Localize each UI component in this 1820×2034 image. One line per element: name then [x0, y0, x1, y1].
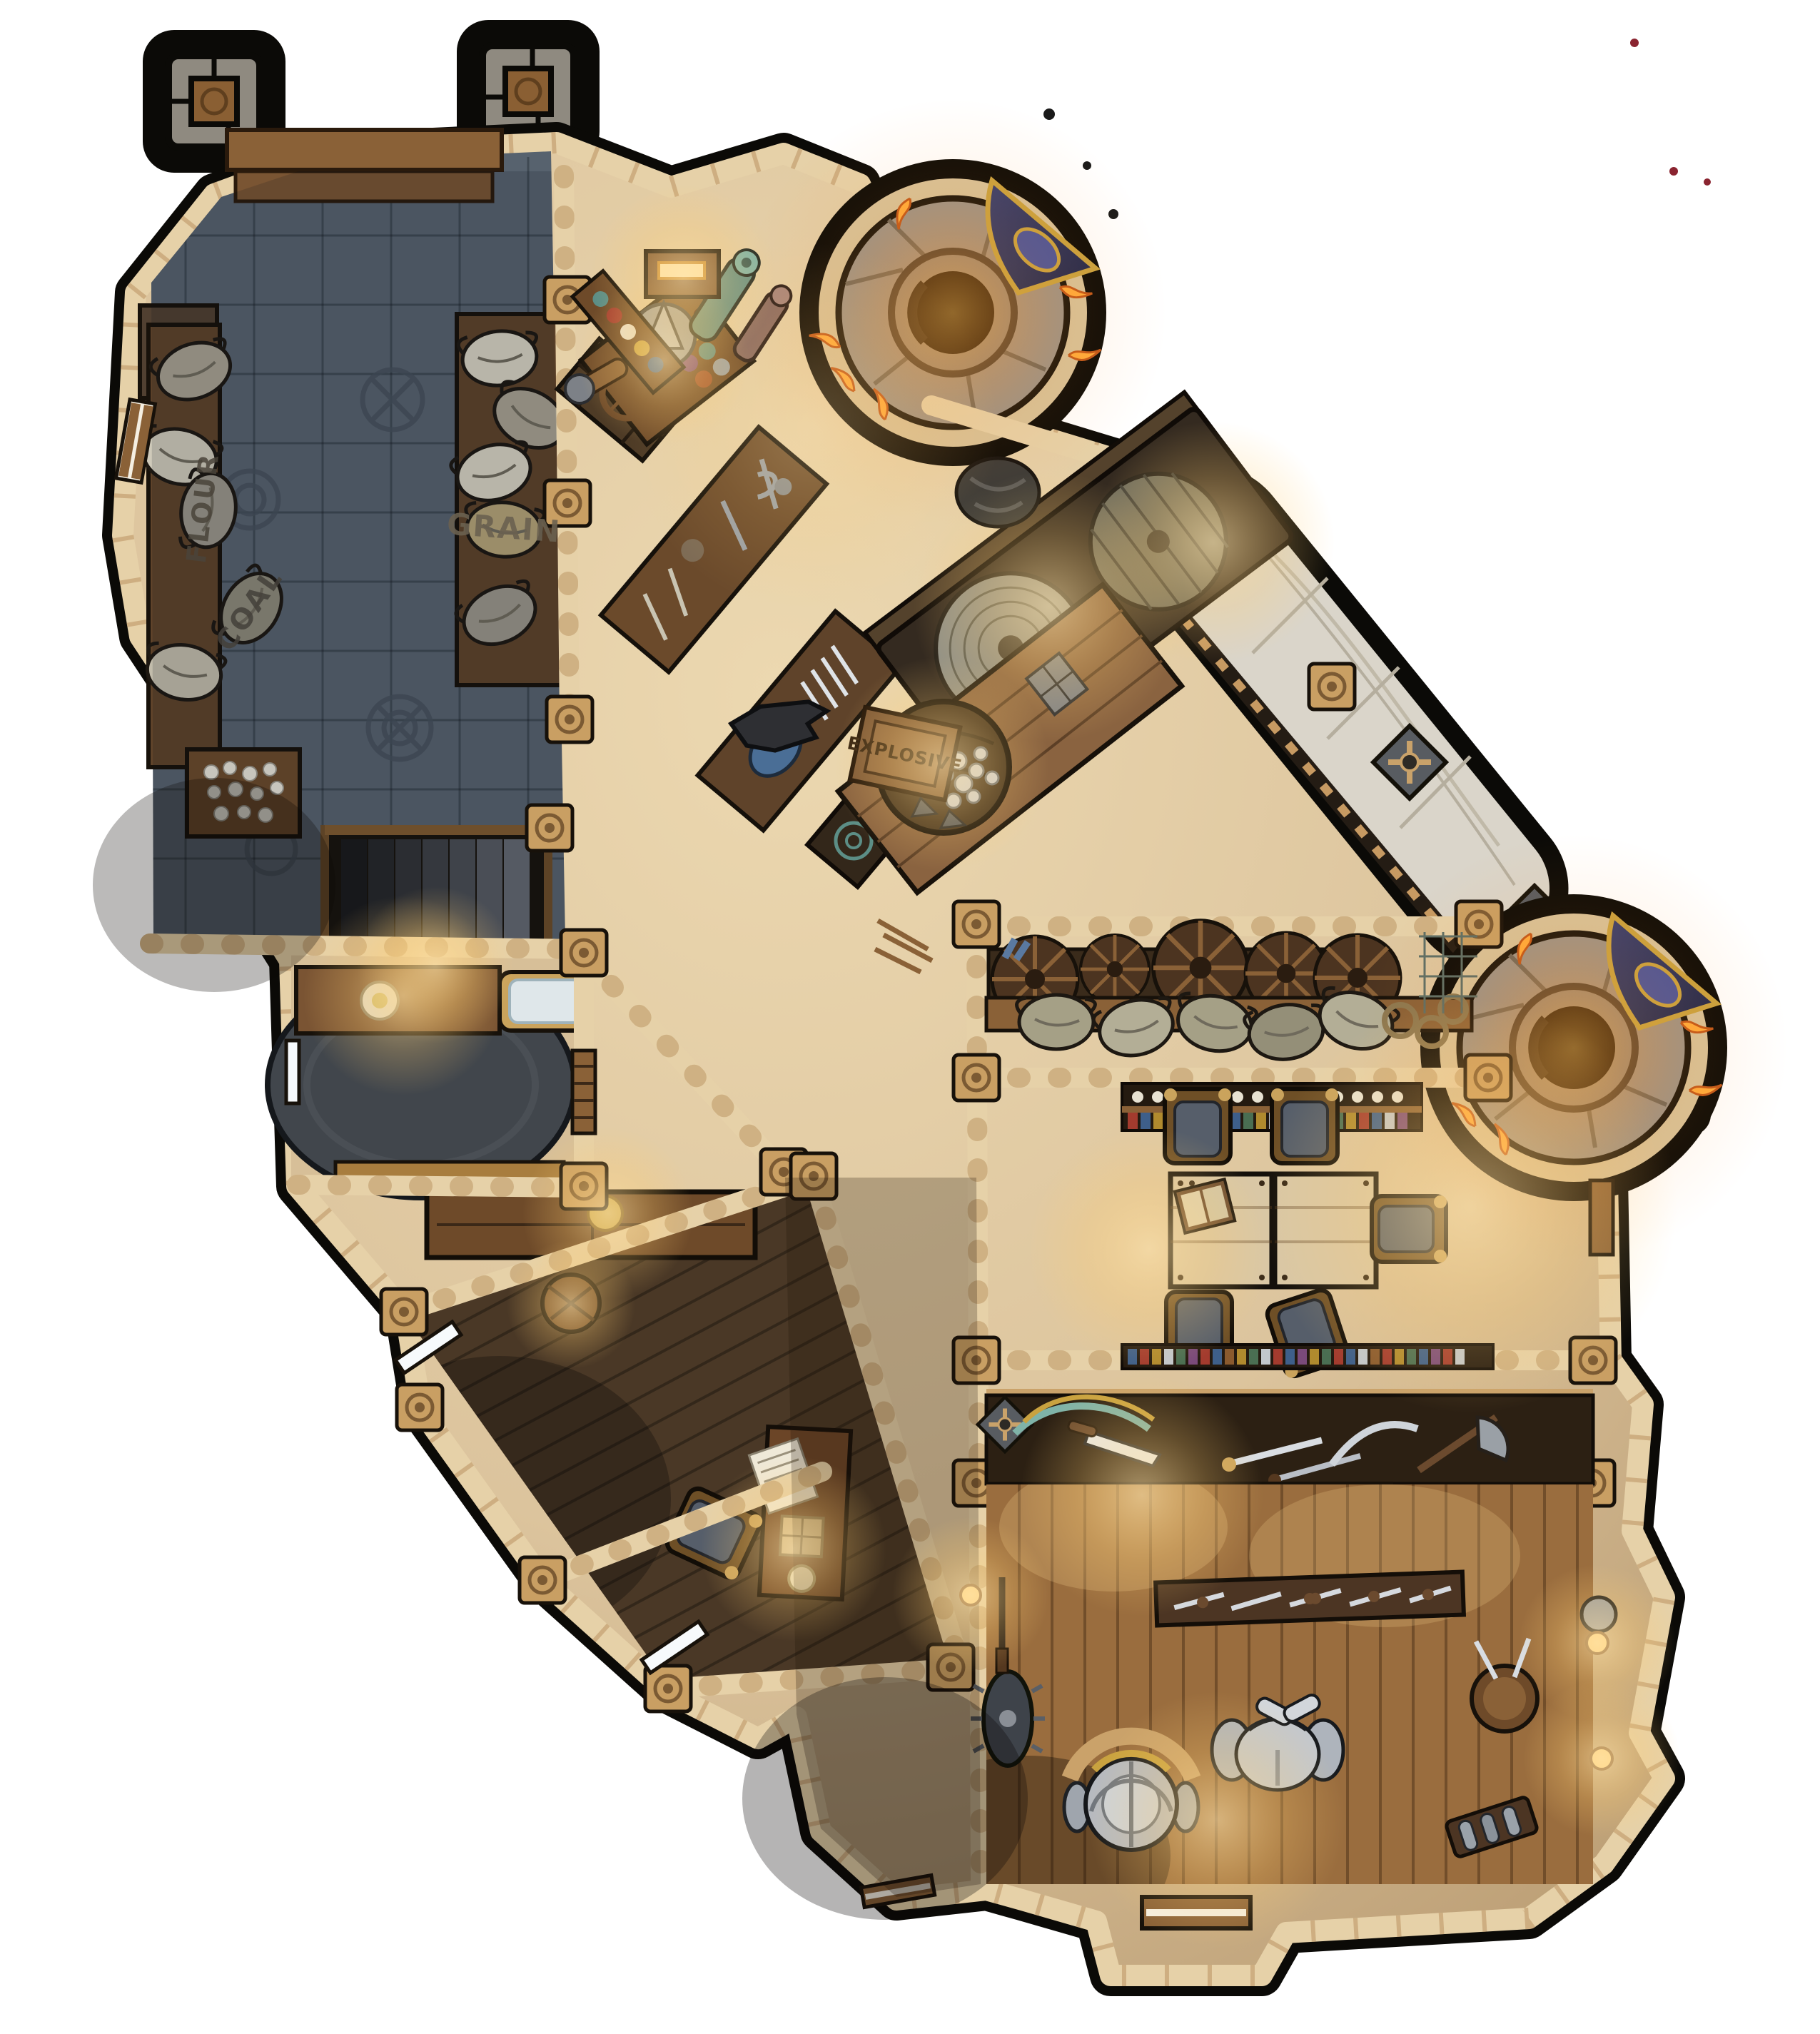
storeroom-top-table — [227, 130, 502, 170]
window-bedroom-west — [286, 1041, 299, 1103]
battle-map: EXPLOSIVE — [0, 0, 1820, 2034]
map-canvas: EXPLOSIVE — [0, 0, 1820, 2034]
door-bedroom-east — [572, 1051, 595, 1133]
debris-specks — [1043, 39, 1711, 226]
